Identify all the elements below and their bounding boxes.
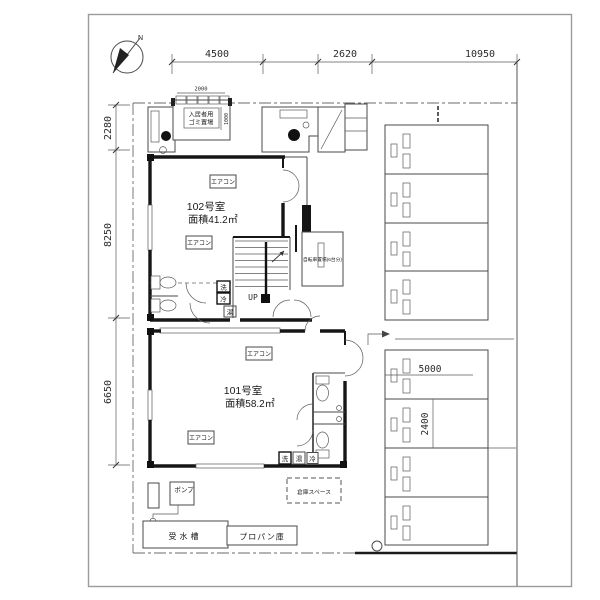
yard-equipment: ポンプ 受水槽 プロパン庫 倉庫スペース <box>143 478 341 548</box>
north-outbuildings: 入居者用 ゴミ置場 2000 1000 <box>148 87 367 154</box>
window <box>160 328 280 333</box>
room-101: エアコン エアコン 101号室 面積58.2㎡ 洗 湯 冷 <box>147 316 363 468</box>
stairs-up-label: UP <box>248 293 258 302</box>
stairwell: UP <box>233 237 311 318</box>
drive-entry-arrow <box>368 331 390 346</box>
washer-box: 洗 <box>282 454 289 463</box>
bathroom-101 <box>297 373 345 460</box>
north-label: N <box>138 35 143 42</box>
dimension-left: 2280 8250 6650 <box>103 102 130 468</box>
washer-box: 洗 <box>220 283 227 292</box>
dim-2400: 2400 <box>420 412 431 435</box>
post-marker <box>161 131 171 141</box>
trash-label-line1: 入居者用 <box>189 112 214 119</box>
pump-label: ポンプ <box>174 486 194 494</box>
door-swing <box>273 300 290 317</box>
parking-north <box>385 125 488 320</box>
trash-shed: 入居者用 ゴミ置場 2000 1000 <box>171 87 232 141</box>
door-swing <box>345 358 363 376</box>
room-101-area: 面積58.2㎡ <box>225 397 274 410</box>
appliance-boxes-101: 洗 湯 冷 <box>279 452 318 464</box>
door-swing <box>186 283 206 303</box>
bicycle-label: 自転車置場(6台分) <box>303 256 342 263</box>
trash-label-line2: ゴミ置場 <box>189 119 214 127</box>
post-marker <box>288 129 300 141</box>
room-102: エアコン エアコン 102号室 面積41.2㎡ 洗 冷 湯 <box>147 154 312 323</box>
pump: ポンプ <box>170 482 194 505</box>
door-swing <box>283 186 299 202</box>
propane-storage: プロパン庫 <box>227 526 297 545</box>
dim-8250: 8250 <box>103 223 114 247</box>
page-border <box>89 15 572 587</box>
north-arrow-icon: N <box>111 35 143 73</box>
door-swing <box>294 300 311 317</box>
entry-porch <box>262 107 318 152</box>
door-swing <box>345 340 363 358</box>
door-swing <box>297 430 313 446</box>
water-tank: 受水槽 <box>143 521 228 548</box>
water-tank-label: 受水槽 <box>169 531 202 541</box>
dim-6650: 6650 <box>103 380 114 404</box>
dim-4500: 4500 <box>205 49 229 60</box>
dim-1000: 1000 <box>224 113 230 125</box>
room-101-name: 101号室 <box>224 384 263 397</box>
floor-plan-scan: N 4500 2620 10950 2280 8250 6650 <box>0 0 600 600</box>
fridge-box: 冷 <box>220 295 227 304</box>
aircon-label: エアコン <box>247 351 271 358</box>
manhole <box>372 541 382 551</box>
window <box>148 390 152 420</box>
side-shed <box>345 104 367 150</box>
storage-space-label: 倉庫スペース <box>297 488 331 496</box>
storage-space: 倉庫スペース <box>287 478 341 503</box>
window <box>196 464 264 468</box>
dim-2000: 2000 <box>194 87 207 93</box>
room-102-name: 102号室 <box>187 200 226 213</box>
floor-plan-drawing: N 4500 2620 10950 2280 8250 6650 <box>0 0 600 600</box>
aircon-label: エアコン <box>189 435 213 442</box>
fridge-box: 冷 <box>309 454 316 463</box>
dim-10950: 10950 <box>465 49 495 60</box>
heater-box: 湯 <box>296 454 303 463</box>
parking-south: 5000 2400 <box>372 350 488 551</box>
dim-2620: 2620 <box>333 49 357 60</box>
door-swing <box>283 170 299 186</box>
door-swing <box>297 404 313 420</box>
propane-label: プロパン庫 <box>239 532 284 542</box>
aircon-label: エアコン <box>211 179 235 186</box>
aircon-label: エアコン <box>187 240 211 247</box>
window <box>148 205 152 250</box>
dimension-top: 4500 2620 10950 <box>169 49 520 74</box>
room-102-area: 面積41.2㎡ <box>188 213 237 226</box>
dim-5000: 5000 <box>419 364 442 375</box>
meter-room <box>148 107 175 152</box>
bicycle-storage: 自転車置場(6台分) <box>296 225 343 286</box>
door-swing <box>305 316 320 331</box>
dim-2280: 2280 <box>103 116 114 140</box>
